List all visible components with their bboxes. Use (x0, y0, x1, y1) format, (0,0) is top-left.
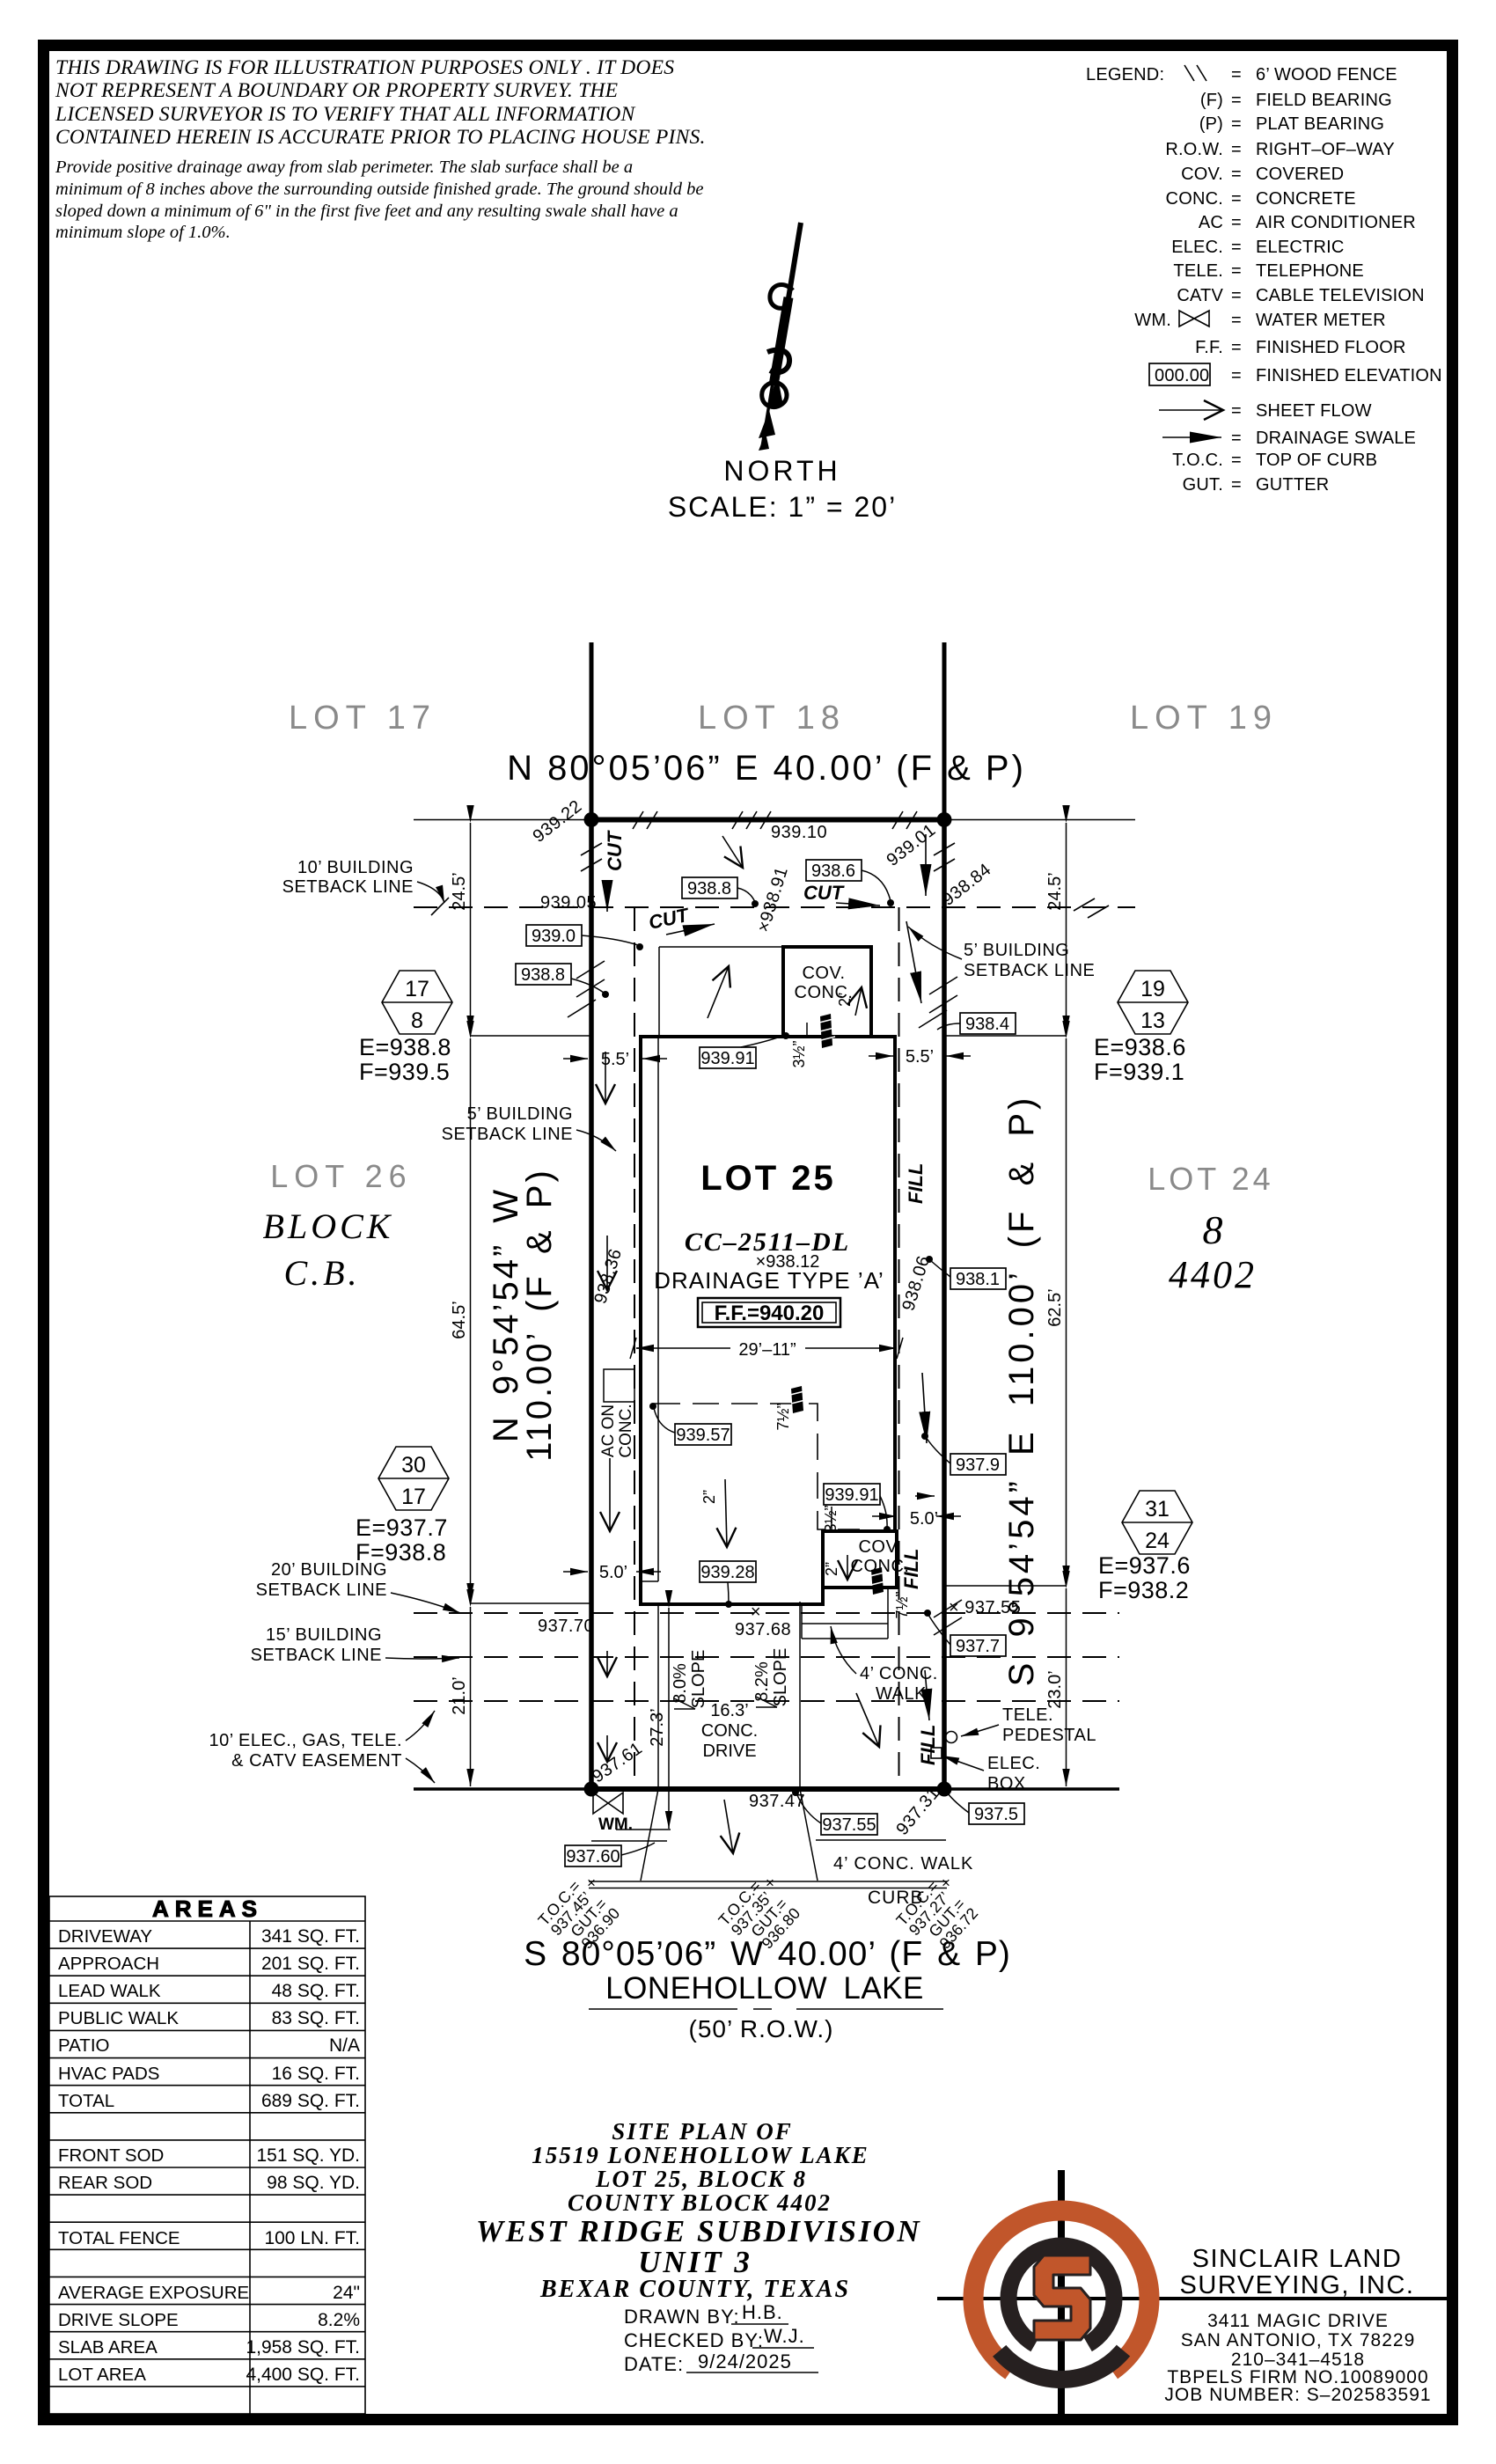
svg-text:5’ BUILDING: 5’ BUILDING (467, 1104, 573, 1124)
svg-text:COV.: COV. (802, 964, 845, 983)
svg-text:24.5’: 24.5’ (1045, 872, 1065, 910)
svg-text:LOT 19: LOT 19 (1130, 700, 1278, 737)
svg-text:939.0: 939.0 (532, 927, 576, 946)
svg-text:SITE PLAN OF: SITE PLAN OF (612, 2118, 793, 2145)
svg-text:DRAINAGE TYPE ’A’: DRAINAGE TYPE ’A’ (654, 1267, 884, 1294)
svg-text:939.22: 939.22 (530, 796, 586, 847)
svg-text:29’–11”: 29’–11” (738, 1340, 796, 1360)
svg-text:ELEC.: ELEC. (987, 1754, 1040, 1773)
svg-text:83 SQ. FT.: 83 SQ. FT. (272, 2008, 360, 2028)
svg-text:W.J.: W.J. (764, 2325, 805, 2347)
svg-text:LOT 18: LOT 18 (698, 700, 846, 737)
svg-text:CONC.: CONC. (701, 1721, 758, 1741)
svg-text:ELECTRIC: ELECTRIC (1256, 238, 1345, 257)
svg-text:151 SQ. YD.: 151 SQ. YD. (256, 2145, 360, 2166)
svg-text:CHECKED BY:: CHECKED BY: (624, 2329, 764, 2351)
svg-text:939.91: 939.91 (825, 1485, 878, 1505)
svg-text:F=938.8: F=938.8 (356, 1539, 446, 1566)
svg-text:8: 8 (411, 1008, 423, 1033)
svg-text:TELE.: TELE. (1173, 261, 1223, 281)
svg-text:4’ CONC. WALK: 4’ CONC. WALK (833, 1854, 973, 1874)
svg-text:CONTAINED HEREIN IS ACCURATE P: CONTAINED HEREIN IS ACCURATE PRIOR TO PL… (55, 126, 706, 149)
svg-text:=: = (1231, 311, 1242, 330)
svg-text:939.05: 939.05 (540, 893, 597, 913)
svg-text:C.B.: C.B. (283, 1253, 360, 1293)
svg-text:AC: AC (1199, 213, 1223, 232)
svg-text:937.5: 937.5 (974, 1805, 1018, 1824)
svg-text:=: = (1231, 286, 1242, 305)
svg-text:N 80°05’06” E 40.00’ (F & P): N 80°05’06” E 40.00’ (F & P) (507, 749, 1026, 788)
svg-text:DRIVEWAY: DRIVEWAY (58, 1926, 152, 1947)
svg-text:CABLE TELEVISION: CABLE TELEVISION (1256, 286, 1425, 305)
svg-text:938.8: 938.8 (521, 965, 565, 985)
svg-text:DRAINAGE SWALE: DRAINAGE SWALE (1256, 429, 1416, 448)
svg-text:27.3’: 27.3’ (648, 1708, 667, 1746)
svg-text:=: = (1231, 165, 1242, 184)
svg-text:CONC.: CONC. (795, 983, 854, 1002)
svg-text:937.61: 937.61 (589, 1739, 646, 1787)
svg-text:LICENSED SURVEYOR IS TO VERIFY: LICENSED SURVEYOR IS TO VERIFY THAT ALL … (55, 103, 635, 126)
svg-text:8.2%: 8.2% (318, 2310, 360, 2330)
svg-text:937.9: 937.9 (956, 1456, 1000, 1475)
svg-text:N/A: N/A (329, 2035, 360, 2056)
svg-text:SAN ANTONIO, TX 78229: SAN ANTONIO, TX 78229 (1181, 2330, 1416, 2350)
svg-text:F.F.=940.20: F.F.=940.20 (715, 1302, 825, 1325)
svg-text:FRONT SOD: FRONT SOD (58, 2145, 164, 2166)
svg-text:DATE:: DATE: (624, 2353, 684, 2375)
svg-text:minimum slope of 1.0%.: minimum slope of 1.0%. (55, 223, 231, 242)
svg-text:8.2%: 8.2% (752, 1661, 772, 1702)
svg-text:LEGEND:: LEGEND: (1086, 65, 1164, 84)
svg-text:DRIVE: DRIVE (702, 1742, 756, 1761)
svg-text:UNIT 3: UNIT 3 (638, 2245, 752, 2279)
svg-text:S 80°05’06” W 40.00’ (F & P): S 80°05’06” W 40.00’ (F & P) (524, 1935, 1011, 1973)
svg-text:937.60: 937.60 (566, 1847, 620, 1866)
svg-text:CUT: CUT (647, 904, 692, 934)
svg-text:15519 LONEHOLLOW LAKE: 15519 LONEHOLLOW LAKE (532, 2142, 869, 2168)
svg-text:SINCLAIR LAND: SINCLAIR LAND (1192, 2245, 1403, 2273)
svg-text:=: = (1231, 140, 1242, 159)
svg-text:937.68: 937.68 (735, 1620, 791, 1639)
svg-text:939.10: 939.10 (771, 823, 827, 842)
svg-text:DRIVE SLOPE: DRIVE SLOPE (58, 2310, 179, 2330)
svg-text:SURVEYING, INC.: SURVEYING, INC. (1180, 2271, 1415, 2299)
svg-text:& CATV EASEMENT: & CATV EASEMENT (231, 1751, 402, 1771)
svg-text:×: × (942, 1874, 950, 1891)
svg-text:24.5’: 24.5’ (450, 872, 469, 910)
svg-text:=: = (1231, 91, 1242, 110)
svg-text:938.84: 938.84 (939, 860, 995, 910)
svg-text:16.3’: 16.3’ (710, 1701, 748, 1720)
svg-text:62.5’: 62.5’ (1045, 1288, 1065, 1326)
svg-text:ELEC.: ELEC. (1171, 238, 1223, 257)
svg-text:SETBACK LINE: SETBACK LINE (256, 1580, 387, 1600)
svg-text:CATV: CATV (1177, 286, 1223, 305)
svg-text:15’ BUILDING: 15’ BUILDING (266, 1625, 382, 1645)
svg-text:SHEET FLOW: SHEET FLOW (1256, 401, 1372, 421)
svg-text:H.B.: H.B. (742, 2301, 783, 2323)
svg-text:=: = (1231, 189, 1242, 209)
svg-text:WALK: WALK (876, 1684, 927, 1704)
svg-text:24": 24" (333, 2283, 360, 2303)
svg-text:7½”: 7½” (774, 1403, 792, 1430)
svg-text:TOP OF CURB: TOP OF CURB (1256, 451, 1377, 470)
svg-text:5’ BUILDING: 5’ BUILDING (964, 941, 1069, 960)
svg-text:100 LN. FT.: 100 LN. FT. (264, 2228, 360, 2248)
svg-text:LOT AREA: LOT AREA (58, 2365, 146, 2385)
svg-text:SETBACK LINE: SETBACK LINE (282, 877, 414, 897)
svg-text:WATER METER: WATER METER (1256, 311, 1386, 330)
svg-text:JOB NUMBER: S–202583591: JOB NUMBER: S–202583591 (1164, 2385, 1431, 2405)
svg-text:LOT 26: LOT 26 (270, 1158, 412, 1194)
svg-text:938.36: 938.36 (590, 1246, 626, 1306)
svg-text:=: = (1231, 475, 1242, 495)
svg-text:BLOCK: BLOCK (263, 1206, 394, 1246)
svg-text:HVAC PADS: HVAC PADS (58, 2064, 159, 2084)
svg-text:(P): (P) (1199, 114, 1223, 134)
svg-text:LOT 17: LOT 17 (289, 700, 436, 737)
svg-text:689 SQ. FT.: 689 SQ. FT. (261, 2091, 360, 2111)
svg-text:×: × (766, 1874, 774, 1891)
svg-text:201 SQ. FT.: 201 SQ. FT. (261, 1954, 360, 1974)
svg-text:THIS DRAWING IS FOR ILLUSTRATI: THIS DRAWING IS FOR ILLUSTRATION PURPOSE… (55, 56, 674, 79)
svg-text:000.00: 000.00 (1155, 366, 1209, 385)
svg-text:F=939.5: F=939.5 (359, 1059, 450, 1085)
svg-text:938.6: 938.6 (811, 862, 855, 881)
svg-text:PUBLIC WALK: PUBLIC WALK (58, 2008, 179, 2028)
svg-text:=: = (1231, 451, 1242, 470)
svg-text:4,400 SQ. FT.: 4,400 SQ. FT. (246, 2365, 360, 2385)
svg-text:939.91: 939.91 (700, 1049, 754, 1068)
svg-text:938.1: 938.1 (956, 1270, 1000, 1289)
svg-text:WM.: WM. (598, 1815, 633, 1834)
svg-text:24: 24 (1145, 1529, 1170, 1553)
svg-text:FILL: FILL (905, 1163, 927, 1204)
svg-text:LONEHOLLOW LAKE: LONEHOLLOW LAKE (605, 1971, 924, 2006)
svg-text:FILL: FILL (917, 1725, 939, 1765)
svg-text:SETBACK LINE: SETBACK LINE (442, 1125, 573, 1144)
svg-text:× 937.55: × 937.55 (949, 1598, 1021, 1617)
svg-text:5.0’: 5.0’ (599, 1563, 627, 1582)
svg-text:30: 30 (401, 1453, 426, 1478)
svg-text:PLAT BEARING: PLAT BEARING (1256, 114, 1384, 134)
svg-text:=: = (1231, 366, 1242, 385)
svg-text:BOX: BOX (987, 1774, 1026, 1793)
svg-text:SLOPE: SLOPE (689, 1650, 708, 1709)
svg-text:×: × (751, 1602, 761, 1622)
svg-text:1,958 SQ. FT.: 1,958 SQ. FT. (246, 2337, 360, 2358)
svg-text:E=938.6: E=938.6 (1094, 1034, 1186, 1060)
svg-text:SETBACK LINE: SETBACK LINE (964, 961, 1095, 980)
svg-text:AVERAGE EXPOSURE: AVERAGE EXPOSURE (58, 2283, 249, 2303)
svg-text:SCALE: 1” = 20’: SCALE: 1” = 20’ (668, 491, 897, 523)
svg-text:GUT.: GUT. (1183, 475, 1223, 495)
svg-text:AIR CONDITIONER: AIR CONDITIONER (1256, 213, 1416, 232)
svg-text:17: 17 (405, 977, 429, 1001)
svg-text:BEXAR COUNTY, TEXAS: BEXAR COUNTY, TEXAS (539, 2276, 850, 2303)
svg-text:6’ WOOD FENCE: 6’ WOOD FENCE (1256, 65, 1397, 84)
svg-text:TOTAL: TOTAL (58, 2091, 114, 2111)
svg-text:937.7: 937.7 (956, 1637, 1000, 1656)
svg-text:WM.: WM. (1134, 311, 1171, 330)
svg-text:3½”: 3½” (822, 1505, 840, 1532)
svg-text:FINISHED FLOOR: FINISHED FLOOR (1256, 338, 1406, 357)
svg-text:=: = (1231, 238, 1242, 257)
svg-text:937.55: 937.55 (822, 1815, 876, 1835)
svg-text:minimum of 8 inches above the: minimum of 8 inches above the surroundin… (55, 180, 703, 199)
svg-text:21.0’: 21.0’ (450, 1676, 469, 1714)
svg-text:REAR SOD: REAR SOD (58, 2173, 152, 2193)
svg-text:939.28: 939.28 (700, 1563, 754, 1582)
svg-text:SLAB AREA: SLAB AREA (58, 2337, 158, 2358)
svg-text:AREAS: AREAS (152, 1896, 263, 1922)
svg-text:31: 31 (1145, 1497, 1170, 1522)
svg-text:WEST RIDGE SUBDIVISION: WEST RIDGE SUBDIVISION (476, 2214, 921, 2248)
svg-text:F=938.2: F=938.2 (1098, 1577, 1189, 1603)
svg-text:LOT 24: LOT 24 (1148, 1161, 1273, 1197)
svg-text:341 SQ. FT.: 341 SQ. FT. (261, 1926, 360, 1947)
svg-text:TELEPHONE: TELEPHONE (1256, 261, 1364, 281)
svg-text:13: 13 (1140, 1008, 1165, 1033)
svg-text:=: = (1231, 338, 1242, 357)
svg-text:CONCRETE: CONCRETE (1256, 189, 1356, 209)
svg-text:E=937.7: E=937.7 (356, 1514, 448, 1541)
svg-text:×938.91: ×938.91 (754, 865, 792, 935)
svg-text:SLOPE: SLOPE (771, 1648, 790, 1707)
svg-text:NOT REPRESENT A BOUNDARY OR PR: NOT REPRESENT A BOUNDARY OR PROPERTY SUR… (55, 79, 619, 102)
svg-text:CUT: CUT (803, 882, 845, 904)
svg-text:938.8: 938.8 (687, 879, 731, 898)
svg-text:110.00’ (F & P): 110.00’ (F & P) (520, 1168, 559, 1462)
svg-text:sloped down a minimum of 6" in: sloped down a minimum of 6" in the first… (55, 202, 678, 221)
svg-text:=: = (1231, 429, 1242, 448)
svg-text:10’ BUILDING: 10’ BUILDING (297, 858, 414, 877)
svg-text:COV.: COV. (1181, 165, 1223, 184)
svg-text:=: = (1231, 114, 1242, 134)
svg-text:AC ON: AC ON (599, 1404, 618, 1457)
svg-text:SETBACK LINE: SETBACK LINE (251, 1646, 382, 1665)
svg-text:FIELD BEARING: FIELD BEARING (1256, 91, 1392, 110)
svg-text:GUTTER: GUTTER (1256, 475, 1329, 495)
svg-text:=: = (1231, 65, 1242, 84)
svg-text:CONC.: CONC. (617, 1404, 635, 1457)
svg-text:=: = (1231, 401, 1242, 421)
svg-text:PATIO: PATIO (58, 2035, 109, 2056)
svg-text:10’ ELEC., GAS, TELE.: 10’ ELEC., GAS, TELE. (209, 1731, 402, 1750)
svg-text:17: 17 (401, 1485, 426, 1509)
svg-text:8.0%: 8.0% (671, 1663, 690, 1704)
svg-text:23.0’: 23.0’ (1045, 1670, 1065, 1708)
svg-text:98 SQ. YD.: 98 SQ. YD. (267, 2173, 360, 2193)
svg-text:RIGHT–OF–WAY: RIGHT–OF–WAY (1256, 140, 1395, 159)
svg-text:CUT: CUT (604, 830, 626, 871)
svg-text:LEAD WALK: LEAD WALK (58, 1981, 161, 2001)
svg-text:LOT 25, BLOCK 8: LOT 25, BLOCK 8 (595, 2166, 807, 2192)
svg-text:9/24/2025: 9/24/2025 (698, 2350, 792, 2372)
svg-text:×: × (587, 1874, 596, 1891)
svg-text:CONC.: CONC. (1166, 189, 1223, 209)
svg-text:(50’ R.O.W.): (50’ R.O.W.) (689, 2015, 834, 2042)
svg-text:LOT 25: LOT 25 (700, 1159, 836, 1198)
svg-text:7½”: 7½” (893, 1591, 911, 1618)
svg-text:CONC.: CONC. (851, 1557, 910, 1576)
svg-text:DRAWN BY:: DRAWN BY: (624, 2306, 740, 2328)
svg-text:(F): (F) (1200, 91, 1223, 110)
svg-text:COV.: COV. (858, 1537, 901, 1557)
svg-text:5.5’: 5.5’ (906, 1047, 934, 1067)
svg-text:2”: 2” (700, 1490, 718, 1504)
svg-text:FINISHED ELEVATION: FINISHED ELEVATION (1256, 366, 1442, 385)
svg-text:2”: 2” (823, 1562, 840, 1576)
svg-text:5.0’: 5.0’ (910, 1509, 938, 1529)
svg-text:=: = (1231, 261, 1242, 281)
svg-text:3½”: 3½” (790, 1040, 808, 1067)
svg-text:TELE.: TELE. (1002, 1705, 1053, 1725)
svg-text:19: 19 (1140, 977, 1165, 1001)
svg-text:48 SQ. FT.: 48 SQ. FT. (272, 1981, 360, 2001)
svg-text:F=939.1: F=939.1 (1094, 1059, 1184, 1085)
svg-text:938.4: 938.4 (965, 1015, 1009, 1034)
svg-text:E=938.8: E=938.8 (359, 1034, 451, 1060)
svg-text:64.5’: 64.5’ (450, 1301, 469, 1338)
svg-text:Provide positive drainage away: Provide positive drainage away from slab… (55, 158, 633, 177)
svg-text:8: 8 (1203, 1207, 1223, 1252)
svg-text:939.57: 939.57 (676, 1426, 730, 1445)
svg-text:PEDESTAL: PEDESTAL (1002, 1726, 1096, 1745)
svg-text:NORTH: NORTH (723, 455, 840, 487)
svg-text:E=937.6: E=937.6 (1098, 1552, 1191, 1579)
svg-text:COUNTY BLOCK 4402: COUNTY BLOCK 4402 (568, 2189, 832, 2216)
svg-text:3411 MAGIC DRIVE: 3411 MAGIC DRIVE (1207, 2311, 1389, 2331)
svg-text:COVERED: COVERED (1256, 165, 1344, 184)
svg-text:APPROACH: APPROACH (58, 1954, 159, 1974)
svg-text:=: = (1231, 213, 1242, 232)
svg-text:937.70: 937.70 (538, 1617, 594, 1636)
svg-text:T.O.C.: T.O.C. (1172, 451, 1223, 470)
svg-text:16 SQ. FT.: 16 SQ. FT. (272, 2064, 360, 2084)
svg-text:R.O.W.: R.O.W. (1165, 140, 1223, 159)
svg-text:4402: 4402 (1169, 1253, 1257, 1296)
svg-text:TOTAL FENCE: TOTAL FENCE (58, 2228, 180, 2248)
svg-text:F.F.: F.F. (1195, 338, 1223, 357)
svg-text:939.01: 939.01 (884, 820, 940, 870)
